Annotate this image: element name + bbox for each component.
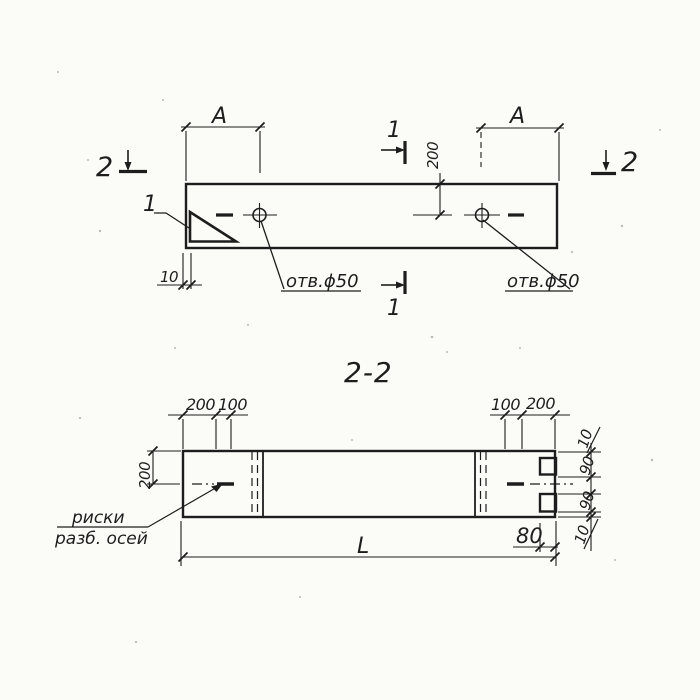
drawing-page: A A 200 10 отв.ϕ50 отв.ϕ50 1 1 2 2 1 2-2	[0, 0, 700, 700]
dim-a-right-label: A	[508, 104, 525, 129]
section-right-joint-lines	[475, 452, 486, 516]
section-marker-1-bottom	[381, 271, 405, 294]
section-marker-1-top	[381, 141, 405, 164]
dim-200-plan	[413, 173, 452, 220]
plan-beam-outline	[186, 184, 557, 248]
section-dim-top-left-200-label: 200	[186, 395, 215, 414]
section-title: 2-2	[344, 356, 393, 389]
section-dim-right-10-bottom-label: 10	[571, 523, 594, 546]
end-slot-bottom	[540, 494, 556, 512]
axis-note-line1: риски	[71, 508, 125, 528]
dim-200-plan-label: 200	[424, 142, 442, 169]
section-marker-1-bottom-label: 1	[387, 296, 401, 321]
end-slot-top	[540, 458, 556, 475]
corner-detail-number: 1	[143, 192, 157, 217]
section-dim-top-right-100-label: 100	[491, 395, 520, 414]
axis-note-line2: разб. осей	[54, 529, 148, 549]
section-dim-top-right	[490, 411, 570, 450]
section-marker-2-left	[119, 150, 147, 172]
section-dim-left-200-label: 200	[136, 462, 154, 489]
section-marker-2-right-label: 2	[621, 147, 638, 178]
section-marker-1-top-label: 1	[387, 118, 401, 143]
section-dim-80-label: 80	[516, 524, 543, 548]
section-marker-2-right	[591, 150, 616, 174]
section-dim-length-label: L	[357, 534, 369, 559]
plan-view	[119, 123, 616, 295]
dim-a-right	[476, 124, 564, 182]
section-dim-top-left	[168, 411, 248, 450]
engineering-drawing: A A 200 10 отв.ϕ50 отв.ϕ50 1 1 2 2 1 2-2	[0, 0, 700, 700]
section-beam-outline	[183, 451, 555, 517]
hole-callout-right-label: отв.ϕ50	[507, 271, 580, 292]
hole-right	[464, 203, 500, 228]
corner-detail-leader	[154, 213, 189, 228]
section-left-joint-lines	[252, 452, 263, 516]
hole-callout-left-label: отв.ϕ50	[286, 271, 359, 292]
dim-10-plan-label: 10	[160, 268, 178, 286]
section-dim-top-right-200-label: 200	[526, 394, 555, 413]
hole-left	[243, 203, 277, 228]
section-dim-right-10-top-label: 10	[574, 427, 597, 450]
section-dim-top-left-100-label: 100	[218, 395, 247, 414]
dim-a-left-label: A	[210, 104, 227, 129]
dim-a-left	[181, 123, 265, 182]
section-marker-2-left-label: 2	[96, 152, 113, 183]
